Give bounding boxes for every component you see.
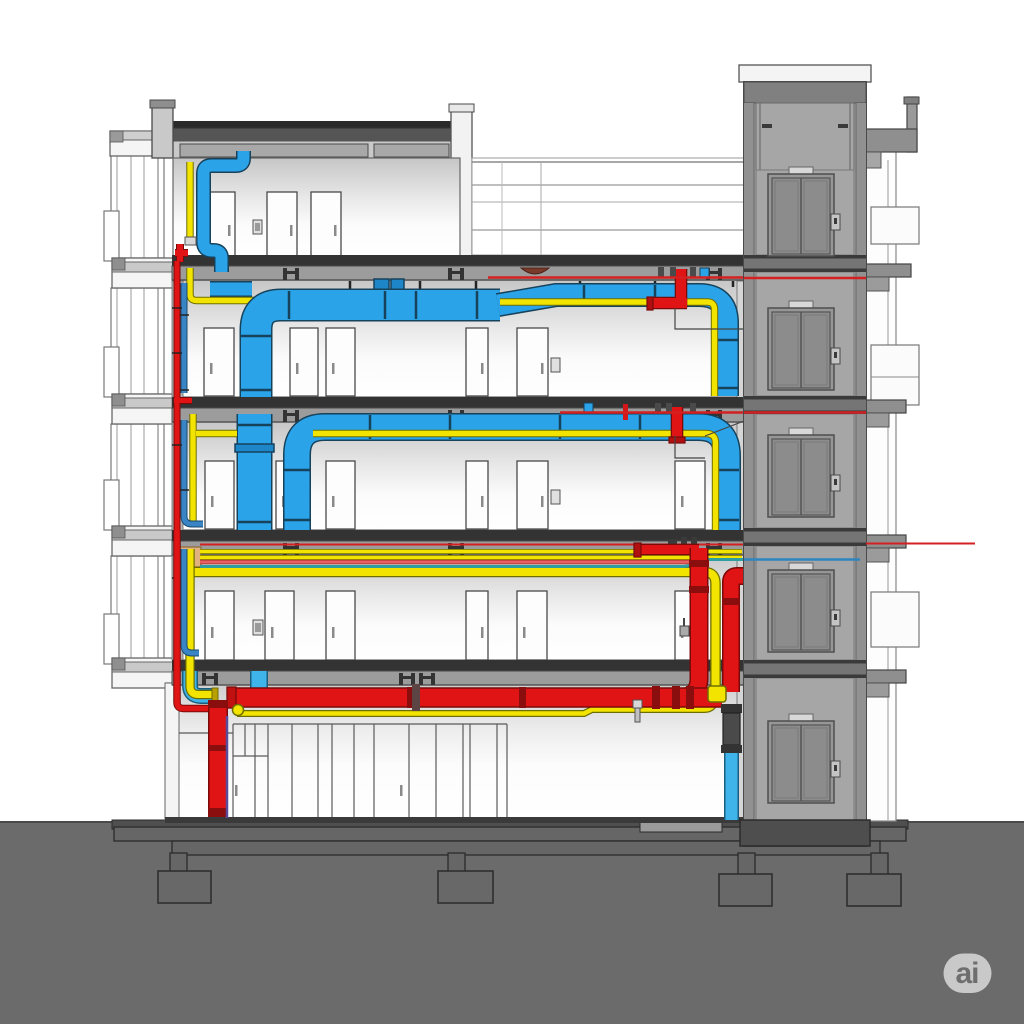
svg-text:ai: ai [955,957,978,990]
